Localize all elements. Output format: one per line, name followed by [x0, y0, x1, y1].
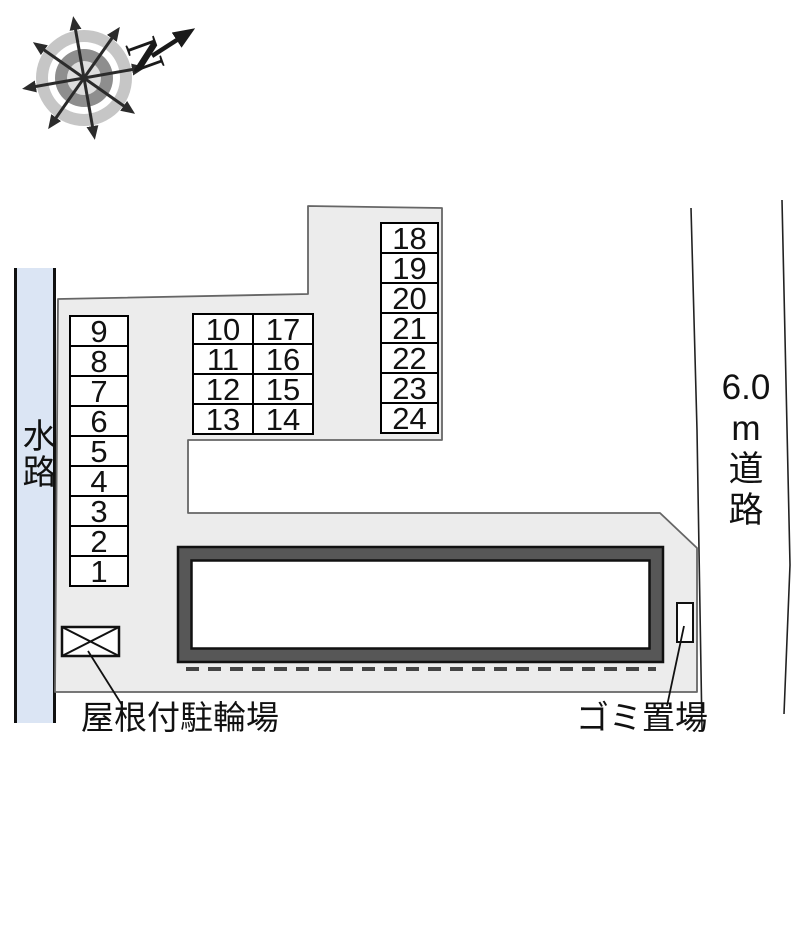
parking-space: 21	[380, 312, 439, 344]
parking-space: 6	[69, 405, 129, 437]
parking-space: 22	[380, 342, 439, 374]
parking-space: 20	[380, 282, 439, 314]
parking-space: 1	[69, 555, 129, 587]
site-plan-page: { "compass": { "north_letter": "N" }, "w…	[0, 0, 800, 940]
parking-grid-row: 10 17	[192, 313, 314, 345]
road-label-line: 道	[728, 452, 763, 487]
road-label-line: 路	[728, 493, 763, 528]
road-label: 6.0 m 道 路	[714, 370, 778, 528]
parking-space: 11	[192, 343, 254, 375]
building-interior	[192, 561, 650, 649]
parking-space: 17	[252, 313, 314, 345]
parking-space: 7	[69, 375, 129, 407]
north-letter: N	[116, 31, 175, 80]
building	[178, 547, 663, 662]
parking-space: 24	[380, 402, 439, 434]
road-label-line: m	[731, 411, 760, 446]
parking-space: 16	[252, 343, 314, 375]
parking-space: 9	[69, 315, 129, 347]
garbage-area-label: ゴミ置場	[576, 701, 708, 734]
parking-space: 8	[69, 345, 129, 377]
road-label-line: 6.0	[722, 370, 771, 405]
parking-space: 19	[380, 252, 439, 284]
parking-grid-row: 11 16	[192, 343, 314, 375]
garbage-box	[677, 603, 693, 642]
parking-space: 15	[252, 373, 314, 405]
compass-rose: N	[27, 21, 180, 135]
parking-space: 23	[380, 372, 439, 404]
parking-column-right: 18 19 20 21 22 23 24	[380, 222, 439, 434]
parking-grid-row: 13 14	[192, 403, 314, 435]
parking-space: 18	[380, 222, 439, 254]
parking-space: 2	[69, 525, 129, 557]
parking-grid-row: 12 15	[192, 373, 314, 405]
waterway-label: 水路	[16, 410, 56, 498]
parking-space: 5	[69, 435, 129, 467]
road-right-edge-line	[782, 200, 790, 714]
parking-space: 4	[69, 465, 129, 497]
parking-grid-middle: 10 17 11 16 12 15 13 14	[192, 313, 314, 435]
parking-column-left: 9 8 7 6 5 4 3 2 1	[69, 315, 129, 587]
bicycle-shed-label: 屋根付駐輪場	[81, 701, 279, 734]
parking-space: 14	[252, 403, 314, 435]
parking-space: 3	[69, 495, 129, 527]
bicycle-shed-box	[62, 627, 119, 656]
parking-space: 10	[192, 313, 254, 345]
parking-space: 13	[192, 403, 254, 435]
parking-space: 12	[192, 373, 254, 405]
